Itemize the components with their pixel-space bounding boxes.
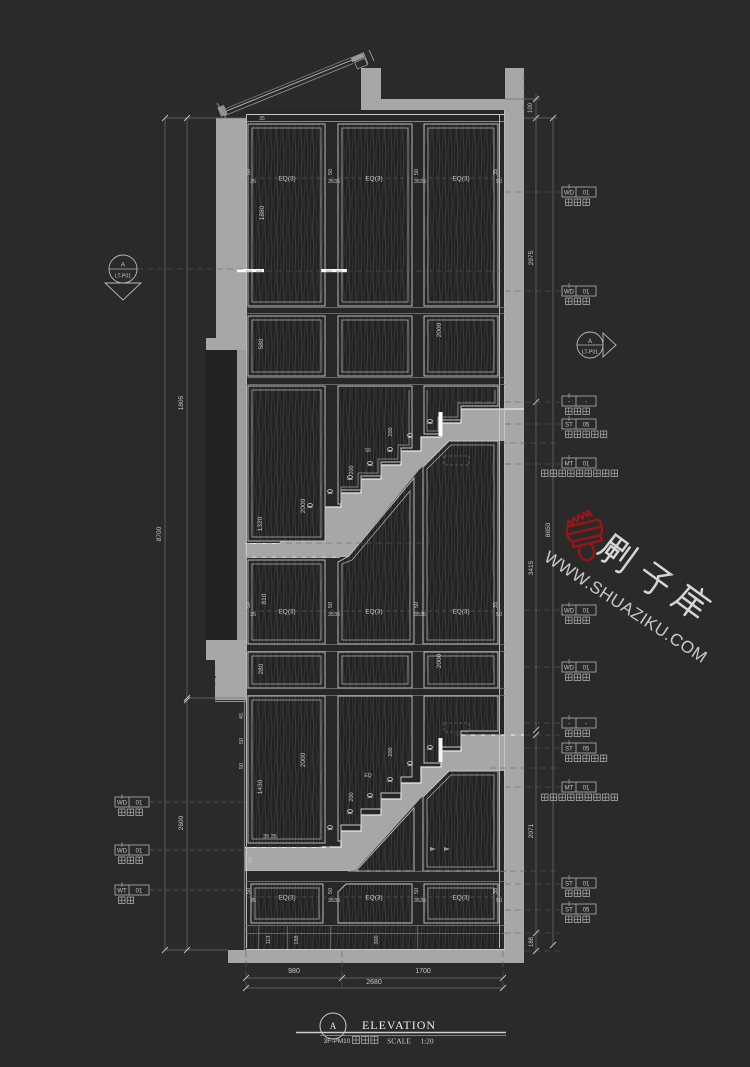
- svg-text:01: 01: [136, 801, 143, 807]
- svg-text:ST: ST: [565, 882, 573, 888]
- svg-text:01: 01: [583, 666, 590, 672]
- svg-text:A: A: [121, 263, 125, 269]
- svg-text:2680: 2680: [366, 979, 382, 986]
- svg-text:-: -: [585, 722, 587, 728]
- svg-text:EQ(3): EQ(3): [452, 895, 469, 902]
- svg-text:WD: WD: [564, 290, 575, 296]
- svg-text:WD: WD: [117, 849, 128, 855]
- svg-text:50: 50: [414, 602, 420, 608]
- svg-text:8650: 8650: [545, 522, 552, 537]
- svg-text:WD: WD: [564, 609, 575, 615]
- svg-text:MT: MT: [565, 462, 574, 468]
- svg-text:EQ(3): EQ(3): [278, 609, 295, 616]
- svg-text:2000: 2000: [300, 498, 307, 513]
- svg-text:35: 35: [493, 888, 499, 894]
- svg-text:01: 01: [583, 609, 590, 615]
- svg-text:01: 01: [583, 462, 590, 468]
- svg-text:EQ(3): EQ(3): [365, 895, 382, 902]
- svg-text:SCALE: SCALE: [387, 1037, 411, 1046]
- svg-text:200: 200: [349, 792, 355, 801]
- svg-text:35: 35: [250, 898, 256, 904]
- svg-text:A: A: [330, 1021, 337, 1031]
- svg-text:2000: 2000: [436, 322, 443, 337]
- svg-text:01: 01: [136, 889, 143, 895]
- svg-text:113: 113: [266, 936, 272, 945]
- svg-text:1320: 1320: [257, 516, 264, 531]
- svg-text:50: 50: [328, 602, 334, 608]
- svg-text:EQ(3): EQ(3): [278, 176, 295, 183]
- svg-text:35: 35: [250, 612, 256, 618]
- svg-text:50: 50: [239, 738, 245, 744]
- svg-text:35: 35: [493, 169, 499, 175]
- svg-text:50: 50: [248, 857, 254, 863]
- svg-text:200: 200: [388, 747, 394, 756]
- svg-text:2975: 2975: [528, 250, 535, 265]
- svg-text:1:20: 1:20: [420, 1037, 434, 1046]
- svg-text:3415: 3415: [528, 560, 535, 575]
- svg-text:ST: ST: [565, 908, 573, 914]
- svg-text:1430: 1430: [257, 779, 264, 794]
- svg-text:35: 35: [493, 602, 499, 608]
- svg-text:01: 01: [583, 191, 590, 197]
- svg-text:WD: WD: [564, 666, 575, 672]
- svg-text:05: 05: [583, 908, 590, 914]
- svg-text:ST: ST: [565, 423, 573, 429]
- svg-text:MT: MT: [565, 786, 574, 792]
- svg-text:50: 50: [365, 448, 371, 454]
- svg-text:50: 50: [328, 169, 334, 175]
- svg-text:-: -: [568, 400, 570, 406]
- svg-text:EQ(3): EQ(3): [365, 176, 382, 183]
- svg-text:35: 35: [259, 116, 265, 122]
- svg-text:2000: 2000: [300, 752, 307, 767]
- svg-text:35: 35: [250, 179, 256, 185]
- svg-text:01: 01: [583, 786, 590, 792]
- svg-text:3535: 3535: [414, 612, 426, 618]
- svg-text:300: 300: [374, 935, 380, 944]
- svg-text:188: 188: [529, 936, 535, 947]
- svg-text:188: 188: [294, 935, 300, 944]
- svg-text:EQ: EQ: [364, 773, 371, 779]
- svg-text:3F-PM10: 3F-PM10: [324, 1038, 351, 1045]
- svg-text:50: 50: [246, 169, 252, 175]
- svg-text:-: -: [568, 722, 570, 728]
- svg-text:50: 50: [246, 888, 252, 894]
- svg-text:580: 580: [258, 338, 265, 349]
- svg-text:WD: WD: [564, 191, 575, 197]
- svg-text:ELEVATION: ELEVATION: [362, 1018, 436, 1032]
- svg-text:810: 810: [261, 593, 268, 604]
- svg-text:200: 200: [388, 427, 394, 436]
- svg-text:EQ(3): EQ(3): [278, 895, 295, 902]
- svg-text:200: 200: [349, 465, 355, 474]
- svg-text:50: 50: [328, 888, 334, 894]
- svg-text:50: 50: [414, 169, 420, 175]
- svg-text:980: 980: [288, 968, 300, 975]
- svg-text:2071: 2071: [528, 823, 535, 838]
- svg-text:35 35: 35 35: [263, 834, 277, 840]
- svg-text:1700: 1700: [415, 968, 431, 975]
- svg-text:50: 50: [239, 763, 245, 769]
- svg-text:8700: 8700: [156, 526, 163, 541]
- svg-text:3535: 3535: [414, 179, 426, 185]
- svg-text:100: 100: [528, 102, 534, 113]
- svg-text:3535: 3535: [328, 612, 340, 618]
- svg-text:EQ(3): EQ(3): [452, 609, 469, 616]
- svg-text:50: 50: [246, 602, 252, 608]
- svg-text:-: -: [585, 400, 587, 406]
- svg-text:50: 50: [414, 888, 420, 894]
- svg-text:WD: WD: [117, 801, 128, 807]
- svg-text:1880: 1880: [259, 205, 266, 220]
- svg-text:3535: 3535: [328, 179, 340, 185]
- svg-text:ST: ST: [565, 747, 573, 753]
- svg-text:2000: 2000: [436, 653, 443, 668]
- svg-text:05: 05: [583, 423, 590, 429]
- svg-text:LT-P01: LT-P01: [582, 350, 598, 356]
- svg-text:2600: 2600: [178, 815, 185, 830]
- svg-text:LT-P01: LT-P01: [115, 274, 131, 280]
- svg-text:01: 01: [136, 849, 143, 855]
- svg-text:280: 280: [258, 663, 265, 674]
- svg-text:EQ(3): EQ(3): [452, 176, 469, 183]
- svg-text:45: 45: [239, 713, 245, 719]
- svg-text:3535: 3535: [328, 898, 340, 904]
- svg-text:01: 01: [583, 290, 590, 296]
- svg-text:EQ(3): EQ(3): [365, 609, 382, 616]
- svg-text:50: 50: [496, 612, 502, 618]
- svg-text:WT: WT: [117, 889, 127, 895]
- svg-text:50: 50: [496, 898, 502, 904]
- svg-text:01: 01: [583, 882, 590, 888]
- svg-text:50: 50: [496, 179, 502, 185]
- svg-text:A: A: [588, 339, 592, 345]
- svg-text:1805: 1805: [178, 395, 185, 410]
- svg-text:3535: 3535: [414, 898, 426, 904]
- svg-text:05: 05: [583, 747, 590, 753]
